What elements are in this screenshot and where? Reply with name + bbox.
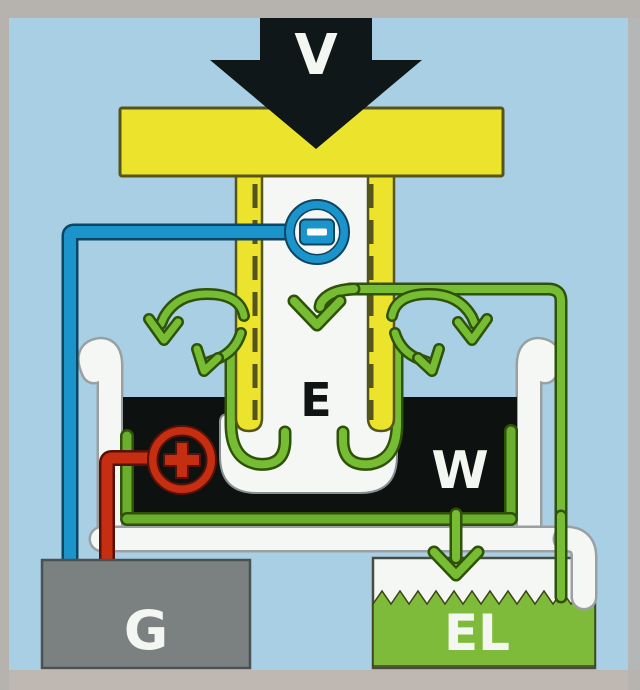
label-generator: G — [116, 604, 176, 658]
frame-border-right — [628, 0, 640, 690]
label-vapor-arrow: V — [286, 28, 346, 84]
plus-terminal-icon — [148, 426, 216, 494]
frame-border-bottom — [0, 670, 640, 690]
vortex-icon-right — [392, 294, 487, 371]
frame-border-top — [0, 0, 640, 18]
label-electrolyte: EL — [436, 608, 518, 658]
frame-border-left — [0, 0, 9, 690]
label-tank-liquid: W — [421, 445, 499, 497]
minus-terminal-icon — [285, 200, 349, 264]
diagram-stage: V E W G EL — [0, 0, 640, 690]
label-electrode: E — [292, 377, 340, 423]
apparatus-diagram — [0, 0, 640, 690]
